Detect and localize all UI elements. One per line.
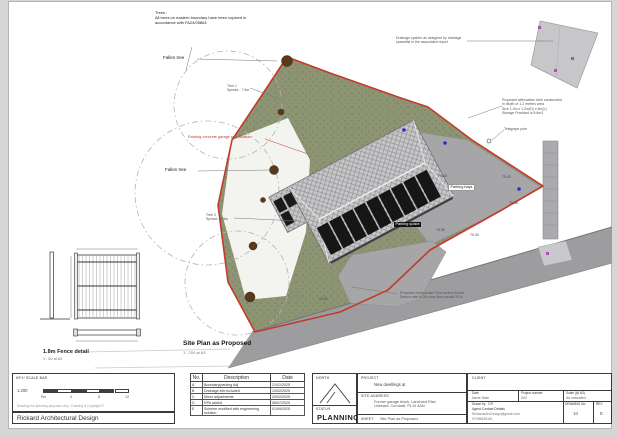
fence-post-side xyxy=(50,252,54,318)
rev-label: REV xyxy=(596,402,603,406)
spot-level: 75.33 xyxy=(470,233,479,237)
utility-marker-magenta xyxy=(554,69,557,72)
fence-plan-post xyxy=(137,329,141,336)
north-arrow-icon xyxy=(317,382,353,404)
tree1-label: Tree 1 Spread - 7.5m xyxy=(227,84,249,93)
project-value: New dwellings at xyxy=(374,382,405,387)
revision-col-description: Description xyxy=(203,374,271,382)
north-label: NORTH xyxy=(316,376,329,380)
attenuation-note: Proposed attenuation tank constructed in… xyxy=(502,98,582,116)
client-label: CLIENT xyxy=(472,376,486,380)
drainage-marker-blue xyxy=(517,187,521,191)
drawing-no-cell: DRAWING No. 10 xyxy=(563,401,594,423)
drawing-no-label: DRAWING No. xyxy=(565,402,586,406)
fence-detail-title: 1.8m Fence detail xyxy=(43,349,89,356)
scale-cell: Scale (@ A3) As indicated xyxy=(563,390,611,401)
revision-header-row: No. Description Date xyxy=(191,374,305,382)
utility-marker-magenta xyxy=(546,252,549,255)
road-section-detail xyxy=(531,21,598,88)
revision-col-date: Date xyxy=(271,374,305,382)
plan-title: Site Plan as Proposed xyxy=(183,340,251,348)
planning-disclaimer: Drawings for planning purposes only - Dr… xyxy=(17,404,104,408)
fence-end-post xyxy=(75,253,78,319)
spot-level: 75.38 xyxy=(509,201,518,205)
hydrobrake-note: Proposed hydrobrake Flow control device … xyxy=(400,291,505,300)
key-scalebar-box: KEY/ SCALE BAR 1:200 0m 4 8 12 Drawings … xyxy=(12,373,175,412)
tree-trunk xyxy=(249,242,257,250)
tree-trunk xyxy=(282,56,293,67)
spot-level: 75.21 xyxy=(319,297,328,301)
fence-detail-scale: 1 : 50 at A3 xyxy=(43,357,62,362)
firm-name: Rickard Architectural Design xyxy=(17,415,99,422)
scale-value: As indicated xyxy=(566,396,586,400)
drainage-marker-blue xyxy=(443,141,447,145)
road-continuation-lines xyxy=(85,349,232,368)
date-label: Date xyxy=(472,391,479,395)
fallen-tree-label-lower: Fallen tree xyxy=(165,167,186,173)
drainage-marker-blue xyxy=(402,128,406,132)
agent-phone: 07498498151 xyxy=(472,417,493,421)
date-cell: Date Issue Date xyxy=(468,390,519,401)
project-box: PROJECT New dwellings at SITE ADDRESS Fo… xyxy=(357,373,467,424)
tree-trunk xyxy=(278,109,284,115)
utility-marker-magenta xyxy=(538,26,541,29)
drawn-by-value: DR xyxy=(488,402,493,406)
drawn-by-label: Drawn by xyxy=(472,402,485,406)
scale-bar xyxy=(43,389,129,393)
parking-bays-label: Parking bays xyxy=(448,184,475,191)
revision-table: No. Description Date ABoundary/parking A… xyxy=(190,373,305,416)
site-address-value: Former garage block, Lanchard Rise, Lisk… xyxy=(374,400,437,408)
spot-level: 75.43 xyxy=(438,174,447,178)
status-label: STATUS xyxy=(316,407,331,411)
tree2-label: Tree 2 Spread - 9.5m xyxy=(206,213,228,222)
scalebar-tick-0: 0m xyxy=(41,395,46,399)
tree-trunk xyxy=(261,198,266,203)
firm-box: Rickard Architectural Design xyxy=(12,412,175,424)
drawing-no-value: 10 xyxy=(573,411,578,416)
scalebar-ratio: 1:200 xyxy=(17,388,27,393)
fence-detail-drawing xyxy=(40,249,141,341)
scalebar-tick-12: 12 xyxy=(125,395,129,399)
site-address-label: SITE ADDRESS xyxy=(361,394,389,398)
tree-trunk xyxy=(270,166,279,175)
scale-label: Scale (@ A3) xyxy=(566,391,585,395)
status-value: PLANNING xyxy=(317,413,359,422)
telegraph-pole-label: Telegraph pole xyxy=(504,127,527,131)
rev-cell: REV E xyxy=(593,401,611,423)
tree-trunk xyxy=(245,292,255,302)
agent-email: RickardsArcDesign@gmail.com xyxy=(472,412,520,416)
fallen-tree-label-upper: Fallen tree xyxy=(163,55,184,61)
parking-space-label: Parking space xyxy=(394,222,421,227)
north-status-box: NORTH STATUS PLANNING xyxy=(312,373,357,424)
trees-note: Trees : All trees on eastern boundary ha… xyxy=(155,10,320,25)
rev-no: E xyxy=(191,406,203,416)
fence-plan-post xyxy=(74,329,78,336)
telegraph-pole-symbol xyxy=(487,139,491,143)
sheet-value: Site Plan as Proposed xyxy=(380,417,418,421)
sheet-divider xyxy=(358,414,466,415)
client-box: CLIENT Date Issue Date Project number 00… xyxy=(467,373,612,424)
rev-value: E xyxy=(600,411,603,416)
agent-label: Agent Contact Details xyxy=(472,407,505,411)
project-label: PROJECT xyxy=(361,376,379,380)
fence-plan-bar xyxy=(76,330,138,335)
pavement-strip xyxy=(543,141,558,239)
drawn-by-cell: Drawn by DR Agent Contact Details Rickar… xyxy=(468,401,564,423)
revision-col-no: No. xyxy=(191,374,203,382)
key-scalebar-label: KEY/ SCALE BAR xyxy=(16,376,47,380)
spot-level: 75.40 xyxy=(502,175,511,179)
project-number-value: 002 xyxy=(521,396,527,400)
rev-desc: Scheme modified with engineering solutio… xyxy=(203,406,271,416)
scalebar-tick-4: 4 xyxy=(70,395,72,399)
date-value: Issue Date xyxy=(472,396,489,400)
fence-end-post xyxy=(137,253,140,319)
sheet-label: SHEET xyxy=(361,417,374,421)
table-row: EScheme modified with engineering soluti… xyxy=(191,406,305,416)
north-status-divider xyxy=(313,405,356,406)
rev-date: 01/09/2025 xyxy=(271,406,305,416)
project-number-label: Project number xyxy=(521,391,543,395)
utility-marker-magenta xyxy=(571,57,574,60)
drainage-note: Drainage system as designed by drainage … xyxy=(396,36,468,45)
existing-pad-label: Existing concrete garage pad location xyxy=(188,135,318,140)
project-divider xyxy=(358,392,466,393)
project-number-cell: Project number 002 xyxy=(518,390,564,401)
plan-scale: 1 : 200 at A3 xyxy=(183,350,205,355)
drawing-sheet-page: Trees : All trees on eastern boundary ha… xyxy=(0,0,618,437)
site-plan-drawing xyxy=(0,0,618,437)
scalebar-tick-8: 8 xyxy=(98,395,100,399)
spot-level: 75.35 xyxy=(436,228,445,232)
